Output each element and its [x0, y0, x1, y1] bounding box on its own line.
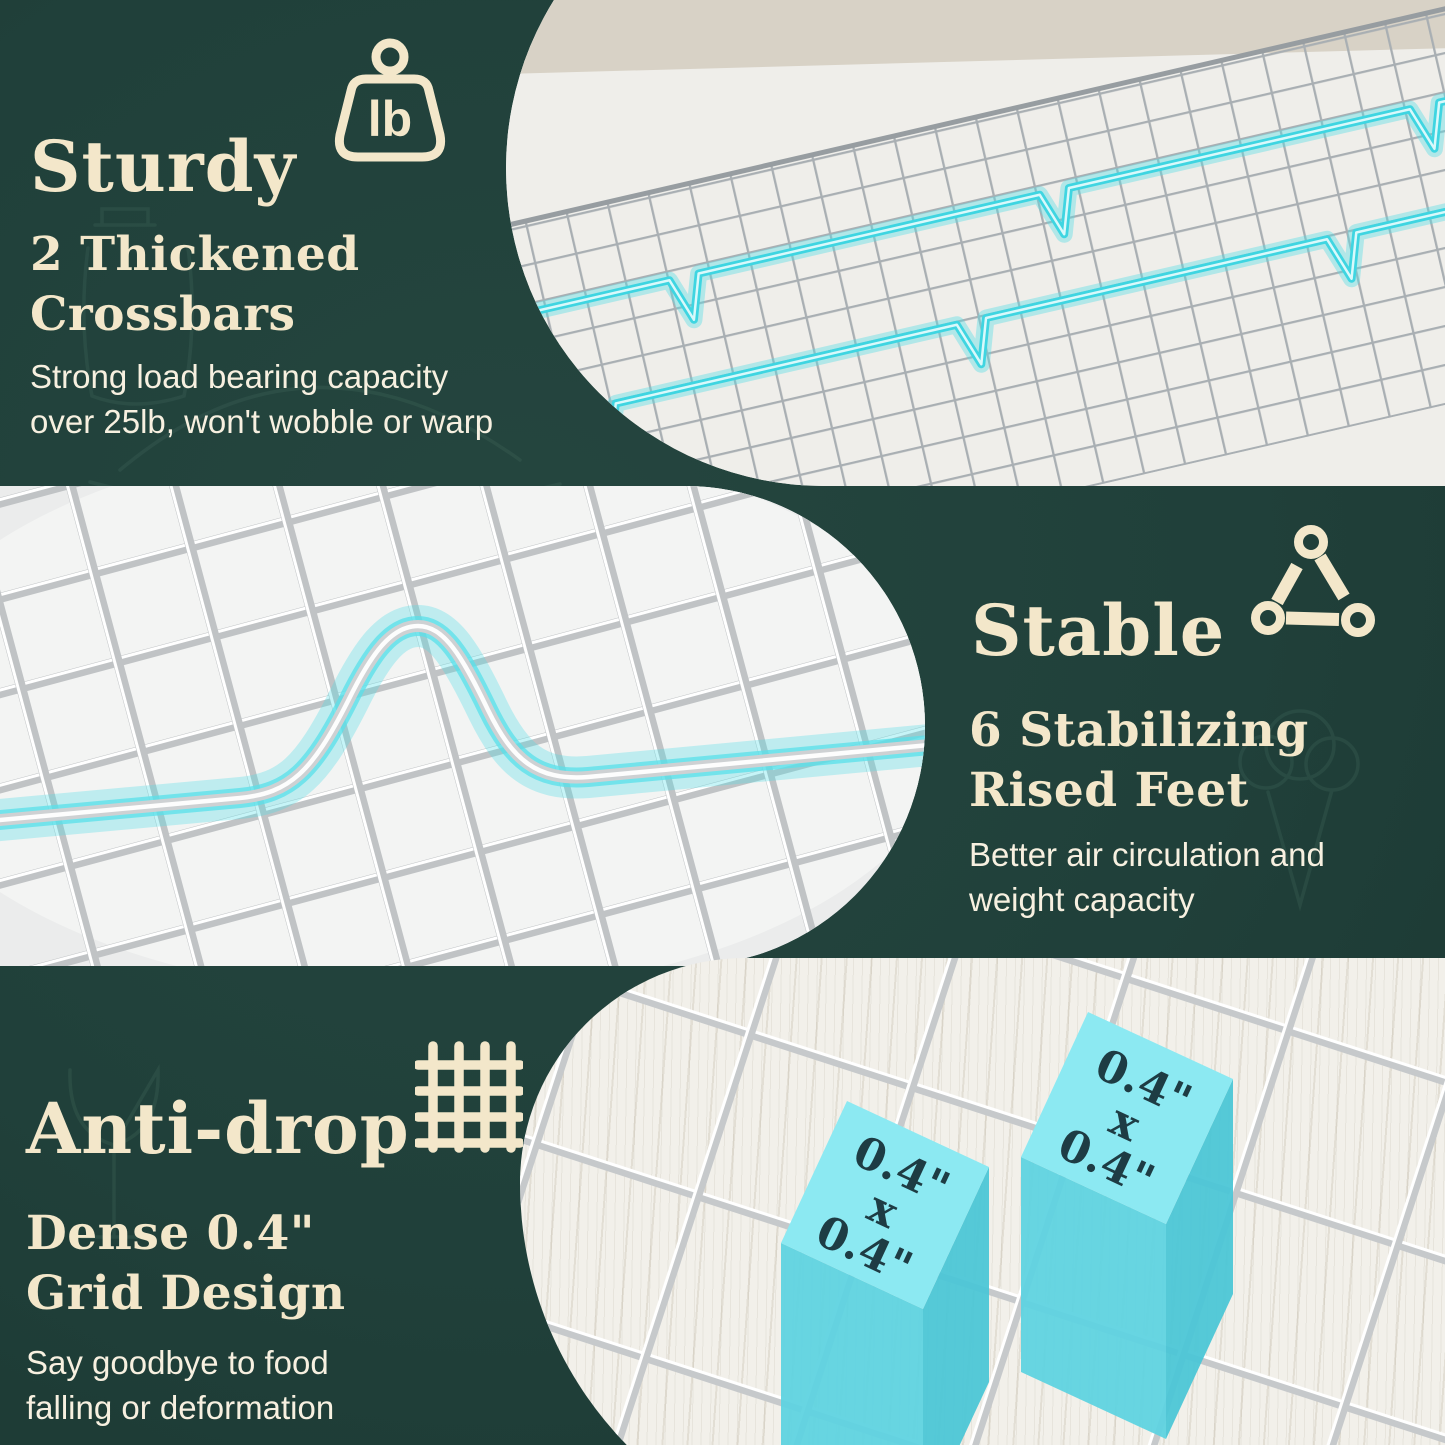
sturdy-title: Sturdy: [30, 129, 296, 205]
antidrop-description-line2: falling or deformation: [26, 1385, 334, 1430]
photo-middle-raised-foot: [0, 486, 925, 966]
antidrop-title: Anti-drop: [26, 1091, 410, 1167]
stable-heading: 6 Stabilizing Rised Feet: [969, 701, 1309, 821]
sturdy-description: Strong load bearing capacity over 25lb, …: [30, 354, 493, 444]
rack-grid-closeup: [0, 486, 925, 966]
sturdy-description-line2: over 25lb, won't wobble or warp: [30, 399, 493, 444]
weight-icon-label: lb: [368, 91, 412, 147]
antidrop-heading: Dense 0.4" Grid Design: [26, 1204, 346, 1324]
infographic-root: 0.4" x 0.4" 0.4" x 0.4" Sturdy lb: [0, 0, 1445, 1445]
photo-bottom-grid-cubes: 0.4" x 0.4" 0.4" x 0.4": [520, 958, 1445, 1445]
stable-description-line2: weight capacity: [969, 877, 1325, 922]
triangle-nodes-icon: [1247, 516, 1379, 648]
stable-title: Stable: [971, 593, 1225, 669]
sturdy-heading: 2 Thickened Crossbars: [30, 225, 360, 345]
antidrop-heading-line1: Dense 0.4": [26, 1204, 346, 1264]
stable-heading-line1: 6 Stabilizing: [969, 701, 1309, 761]
antidrop-description: Say goodbye to food falling or deformati…: [26, 1340, 334, 1430]
sturdy-heading-line2: Crossbars: [30, 285, 360, 345]
grid-mesh-icon: [415, 1040, 523, 1154]
sturdy-heading-line1: 2 Thickened: [30, 225, 360, 285]
antidrop-heading-line2: Grid Design: [26, 1264, 346, 1324]
grid-cubes-illustration: 0.4" x 0.4" 0.4" x 0.4": [520, 958, 1445, 1445]
sturdy-description-line1: Strong load bearing capacity: [30, 354, 493, 399]
stable-description-line1: Better air circulation and: [969, 832, 1325, 877]
rack-crossbars-illustration: [506, 0, 1445, 486]
antidrop-description-line1: Say goodbye to food: [26, 1340, 334, 1385]
stable-heading-line2: Rised Feet: [969, 761, 1309, 821]
weight-lb-icon: lb: [328, 36, 452, 170]
photo-top-crossbars: [506, 0, 1445, 486]
raised-foot-illustration: [0, 486, 925, 966]
stable-description: Better air circulation and weight capaci…: [969, 832, 1325, 922]
